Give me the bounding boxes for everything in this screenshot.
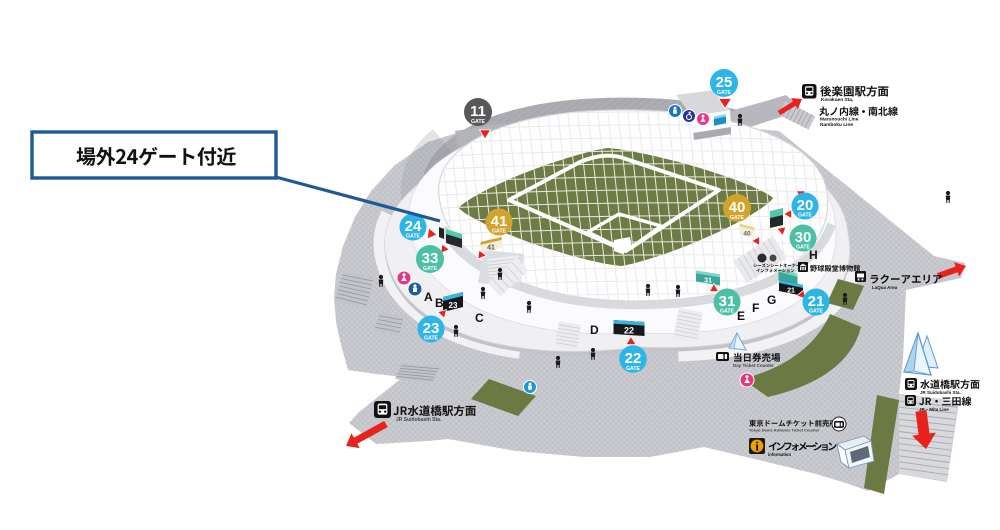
svg-text:G: G bbox=[767, 293, 776, 307]
svg-text:GATE: GATE bbox=[720, 309, 735, 315]
svg-text:information: information bbox=[768, 452, 791, 457]
svg-text:GATE: GATE bbox=[423, 266, 438, 272]
svg-text:20: 20 bbox=[797, 197, 814, 214]
svg-text:D: D bbox=[590, 323, 599, 337]
svg-text:40: 40 bbox=[743, 230, 751, 237]
svg-text:GATE: GATE bbox=[424, 336, 439, 342]
svg-text:GATE: GATE bbox=[626, 366, 641, 372]
svg-text:GATE: GATE bbox=[492, 229, 507, 235]
svg-text:GATE: GATE bbox=[796, 245, 811, 251]
svg-text:JR Suidobashi Sta.: JR Suidobashi Sta. bbox=[396, 417, 442, 423]
svg-text:A: A bbox=[424, 290, 433, 304]
svg-text:GATE: GATE bbox=[730, 215, 745, 221]
svg-text:31: 31 bbox=[704, 277, 712, 284]
svg-text:41: 41 bbox=[487, 244, 495, 251]
svg-text:Marunouchi Line: Marunouchi Line bbox=[820, 117, 859, 123]
svg-text:GATE: GATE bbox=[717, 90, 732, 96]
svg-text:GATE: GATE bbox=[809, 309, 824, 315]
svg-text:H: H bbox=[809, 248, 818, 262]
svg-text:JR Suidobashi Sta.: JR Suidobashi Sta. bbox=[920, 390, 961, 395]
svg-text:i: i bbox=[755, 439, 759, 454]
svg-text:40: 40 bbox=[729, 199, 746, 216]
svg-text:21: 21 bbox=[808, 293, 825, 310]
svg-text:Namboku Line: Namboku Line bbox=[820, 122, 853, 128]
svg-text:21: 21 bbox=[787, 287, 795, 294]
svg-text:22: 22 bbox=[625, 350, 642, 367]
svg-text:B: B bbox=[435, 296, 444, 310]
svg-text:GATE: GATE bbox=[471, 119, 486, 125]
svg-text:JR・Mita Line: JR・Mita Line bbox=[919, 407, 949, 412]
svg-text:25: 25 bbox=[716, 74, 733, 91]
svg-text:23: 23 bbox=[449, 301, 458, 310]
svg-text:41: 41 bbox=[491, 213, 508, 230]
svg-text:GATE: GATE bbox=[406, 234, 421, 240]
svg-text:LaQua Area: LaQua Area bbox=[872, 285, 898, 290]
svg-text:F: F bbox=[752, 301, 759, 315]
svg-text:23: 23 bbox=[423, 320, 440, 337]
svg-text:11: 11 bbox=[470, 103, 486, 120]
svg-text:GATE: GATE bbox=[798, 213, 813, 219]
svg-text:30: 30 bbox=[795, 229, 812, 246]
svg-text:E: E bbox=[737, 309, 745, 323]
svg-text:22: 22 bbox=[624, 326, 634, 336]
svg-text:31: 31 bbox=[719, 293, 736, 310]
svg-text:24: 24 bbox=[405, 218, 422, 235]
svg-text:Tokyo Dome Advance Ticket Coun: Tokyo Dome Advance Ticket Counter bbox=[749, 428, 820, 433]
svg-text:C: C bbox=[475, 311, 484, 325]
svg-text:Korakuen Sta,: Korakuen Sta, bbox=[821, 97, 854, 103]
svg-text:Day Ticket Counter: Day Ticket Counter bbox=[733, 363, 774, 368]
svg-text:33: 33 bbox=[422, 250, 439, 267]
